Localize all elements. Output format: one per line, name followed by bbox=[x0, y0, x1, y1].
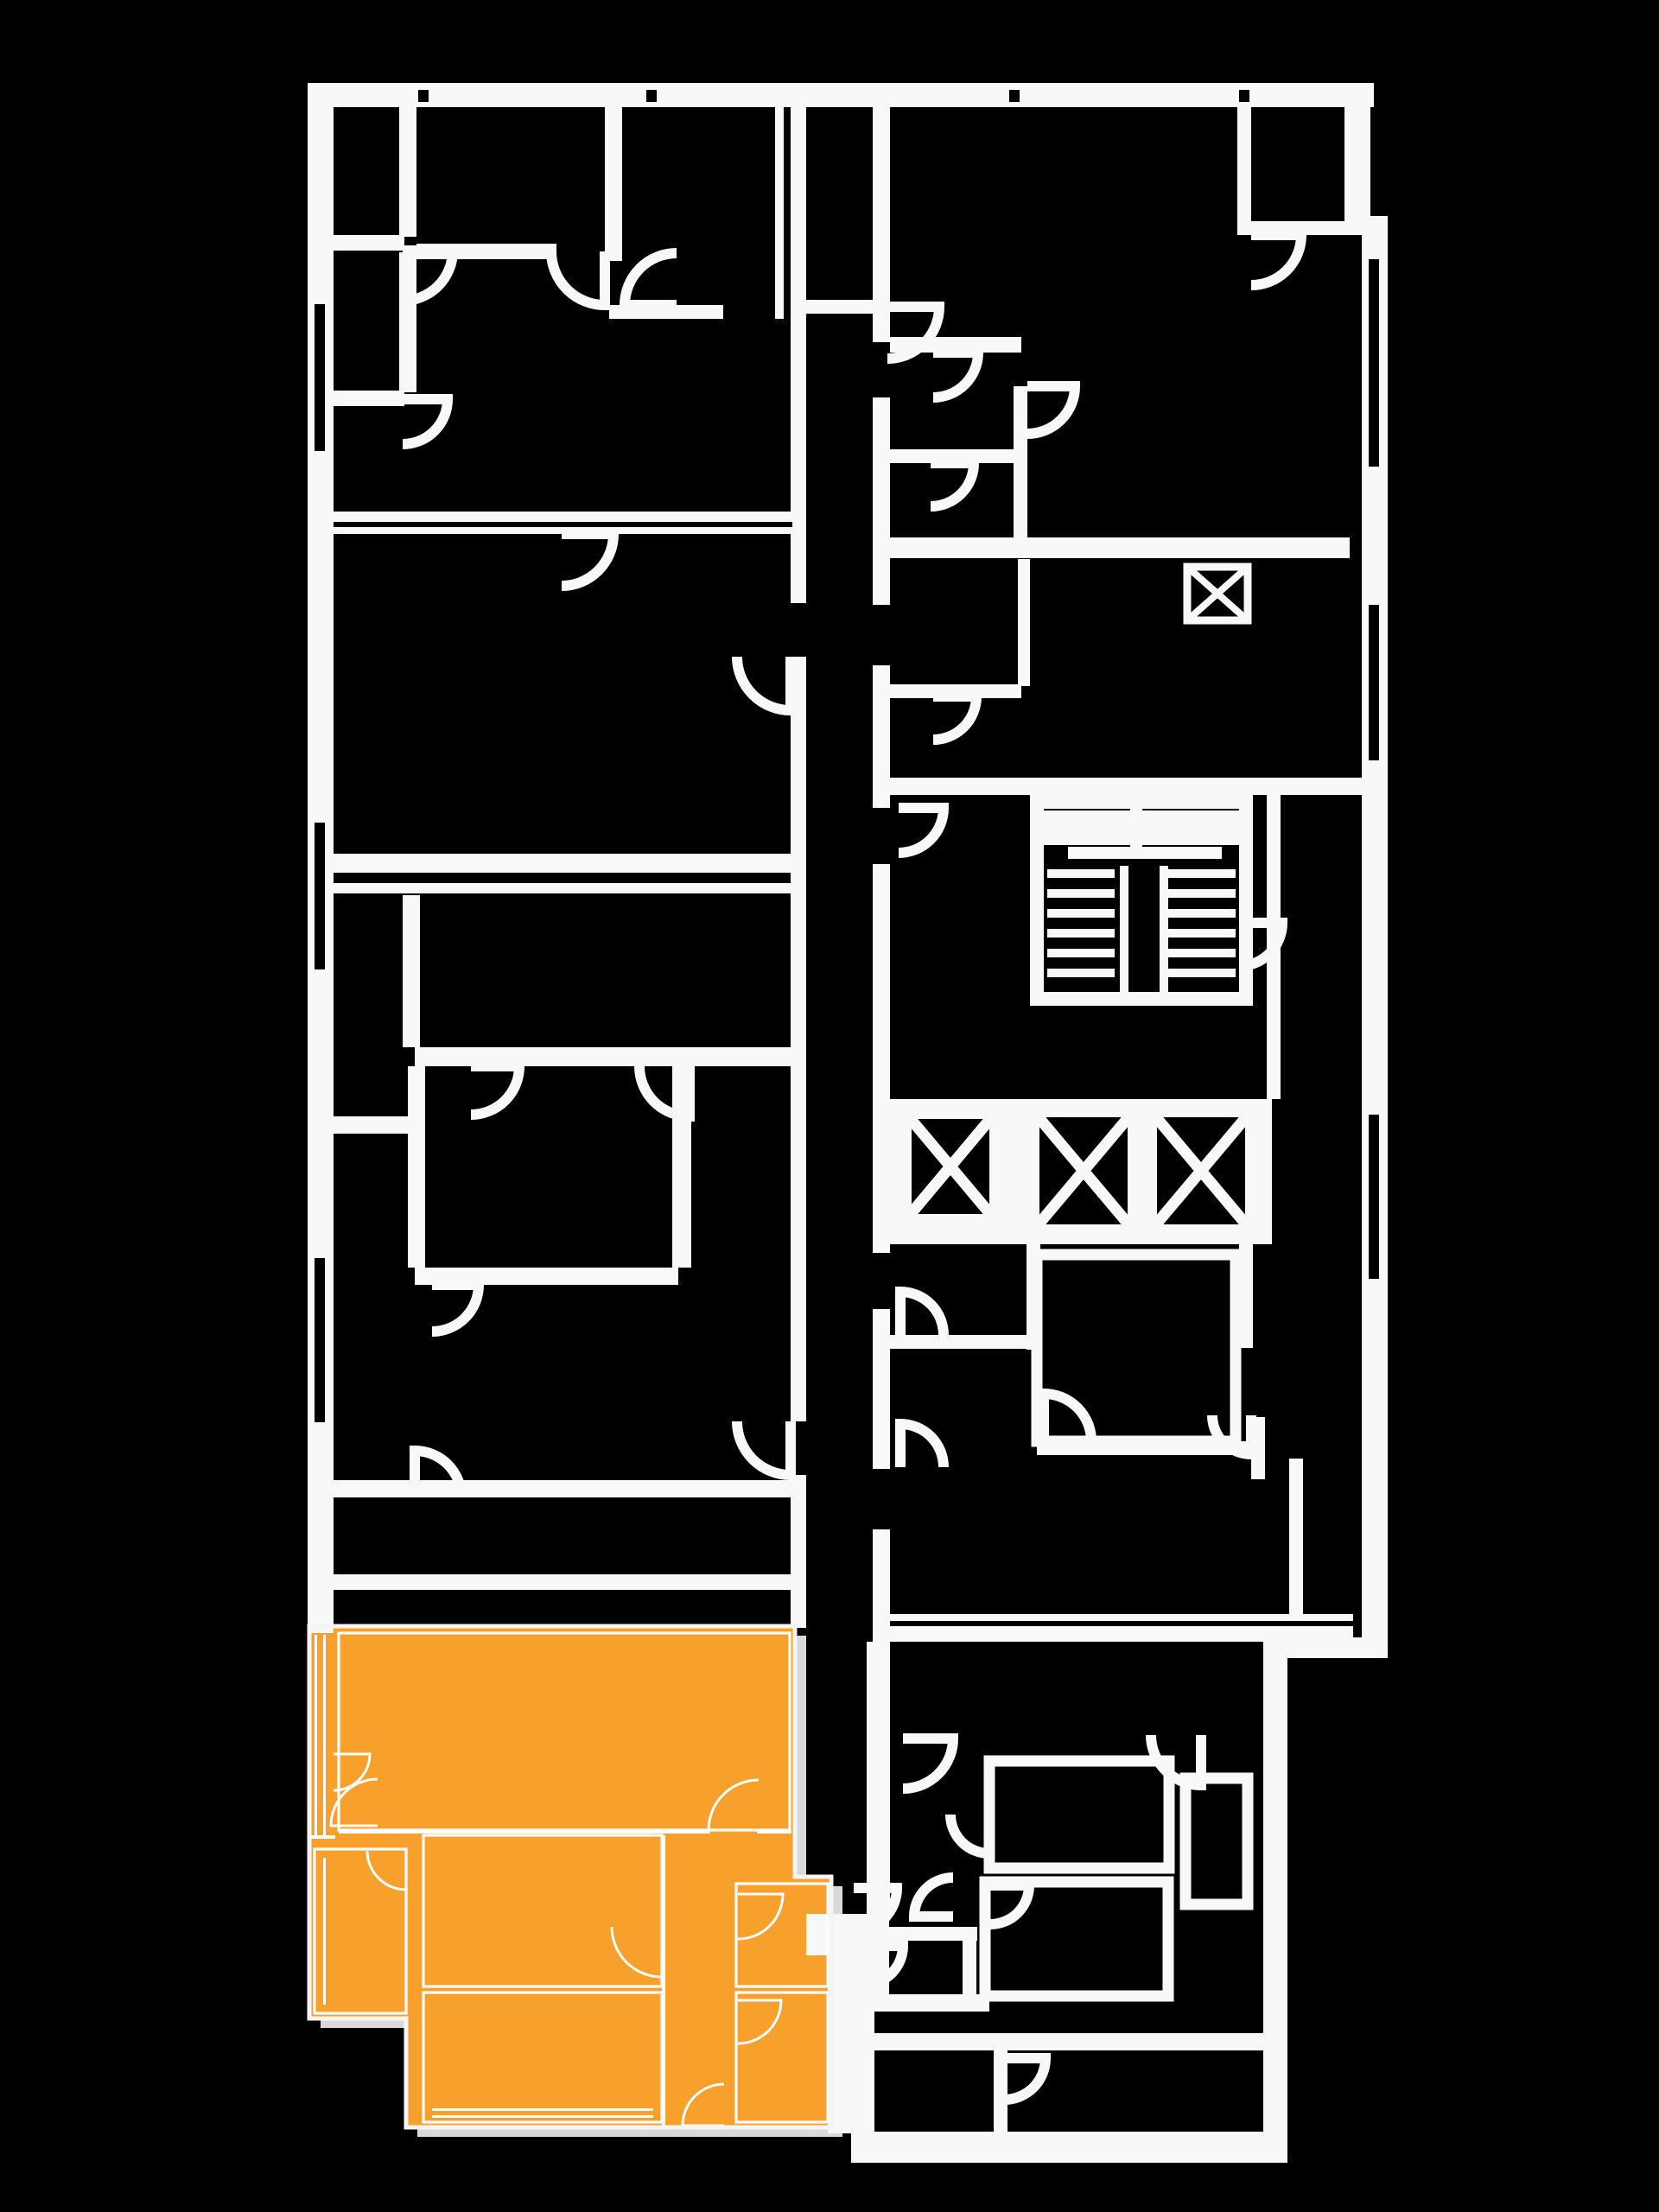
elevators bbox=[906, 1111, 1251, 1230]
floorplan-stage bbox=[0, 0, 1659, 2212]
floor-plan-svg bbox=[0, 0, 1659, 2212]
service-shaft bbox=[1187, 567, 1248, 620]
